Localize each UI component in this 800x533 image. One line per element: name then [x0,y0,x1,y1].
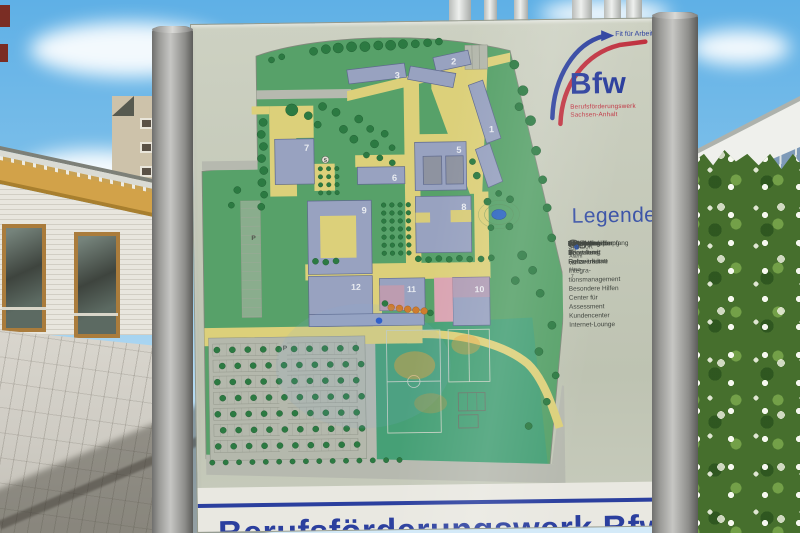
window-sill [2,307,46,310]
tree [390,251,395,256]
sign-bottom-band: Berufsförderungswerk Bfw [197,481,661,532]
tree [381,211,386,216]
sign-board: S 1 2 3 5 6 7 8 9 10 11 12 P P [190,18,661,533]
tree [398,243,403,248]
glare-pink [434,277,453,321]
tree [260,346,266,352]
svg-text:12: 12 [351,282,361,292]
tree [245,379,251,385]
org-name-line2: Sachsen-Anhalt [570,111,617,119]
foreground-low-building [0,140,158,335]
tree [214,379,220,385]
window [2,224,46,332]
tree [335,166,340,170]
tree [235,363,241,369]
tree [390,219,395,224]
legend: 1Wohnheim 1 2Wohnheim 2 3Wohnheim 3 5Aus… [568,239,656,240]
tree [323,442,329,448]
tree [406,226,411,231]
tree [251,427,257,433]
tree [231,443,237,449]
svg-text:11: 11 [407,284,417,294]
tree [214,347,220,353]
tree [276,410,282,416]
sign-post-left [152,26,193,533]
svg-text:10: 10 [474,284,484,294]
tree [250,395,256,401]
tree [318,191,323,195]
tree [326,166,331,170]
svg-text:5: 5 [456,145,461,155]
tree [382,235,387,240]
legend-title: Legende [572,204,657,229]
far-left-building-fragment [0,44,8,62]
tree [343,458,348,463]
tree [220,395,226,401]
photo-of-campus-map-sign: S 1 2 3 5 6 7 8 9 10 11 12 P P [0,0,800,533]
tree [292,442,298,448]
tree [303,459,308,464]
tree [261,378,267,384]
tree [406,218,411,223]
tree [335,174,340,178]
tree [390,227,395,232]
tree [245,347,251,353]
tree [407,251,412,256]
tree [398,202,403,207]
tree [223,460,228,465]
svg-text:1: 1 [489,124,494,134]
cloud [690,30,790,65]
svg-text:9: 9 [361,205,366,215]
tree [398,235,403,240]
window [74,232,120,338]
tree [398,227,403,232]
tree [236,460,241,465]
tree [229,347,235,353]
tree [389,203,394,208]
tree [339,442,345,448]
tree [390,235,395,240]
pond [478,200,520,229]
tree [261,411,267,417]
tree [327,191,332,195]
tree [230,379,236,385]
blue-rule [198,497,661,507]
sign-post-right [652,12,698,533]
tree [398,211,403,216]
post-cap [652,12,698,19]
tree [390,211,395,216]
tree [398,251,403,256]
flowering-shrub [688,150,800,533]
window-sill [74,313,118,316]
tree [246,443,252,449]
tree [318,175,323,179]
tree [210,460,215,465]
svg-text:7: 7 [304,143,309,153]
org-name-line1: Berufsförderungswerk [570,103,636,111]
tree [266,427,272,433]
svg-text:2: 2 [451,57,456,67]
tree [370,458,375,463]
tree [406,202,411,207]
tree [383,458,388,463]
tree [246,411,252,417]
tree [277,443,283,449]
tree [230,411,236,417]
post-cap [152,26,193,33]
tree [265,362,271,368]
tree [382,243,387,248]
tree [250,363,256,369]
tree [382,251,387,256]
tree [250,459,255,464]
roof-edge [112,96,134,116]
bfw-wordmark: Bfw [570,67,627,102]
campus-map: S 1 2 3 5 6 7 8 9 10 11 12 P P [199,32,565,489]
tree [276,459,281,464]
tree [390,243,395,248]
tree [215,411,221,417]
tree [397,457,402,462]
tree [381,219,386,224]
tree [292,410,298,416]
tree [308,442,314,448]
tree [290,459,295,464]
standort-label: Standort [568,242,593,251]
tree [235,427,241,433]
tree [282,426,288,432]
tree [318,167,323,171]
building-6 [357,167,405,185]
parking-label: P [251,235,256,242]
tree [297,426,303,432]
tree [317,458,322,463]
svg-text:3: 3 [395,70,400,80]
tree [335,182,340,186]
tree [326,174,331,178]
tree [381,203,386,208]
tree [263,459,268,464]
tree [330,458,335,463]
tree [398,219,403,224]
tree [261,443,267,449]
tree [235,395,241,401]
tree [354,441,360,447]
logo-tagline: Fit für Arbeit [615,31,653,39]
tree [219,363,225,369]
tree [406,235,411,240]
svg-text:6: 6 [392,173,397,183]
tree [406,243,411,248]
tree [220,427,226,433]
tree [318,183,323,187]
tree [357,458,362,463]
tree [313,426,319,432]
tree [382,227,387,232]
tree [335,190,340,194]
svg-text:8: 8 [461,202,466,212]
tree [266,394,272,400]
tree [215,443,221,449]
tree [328,426,334,432]
tree [327,182,332,186]
far-left-building-fragment [0,5,10,27]
tree [406,210,411,215]
